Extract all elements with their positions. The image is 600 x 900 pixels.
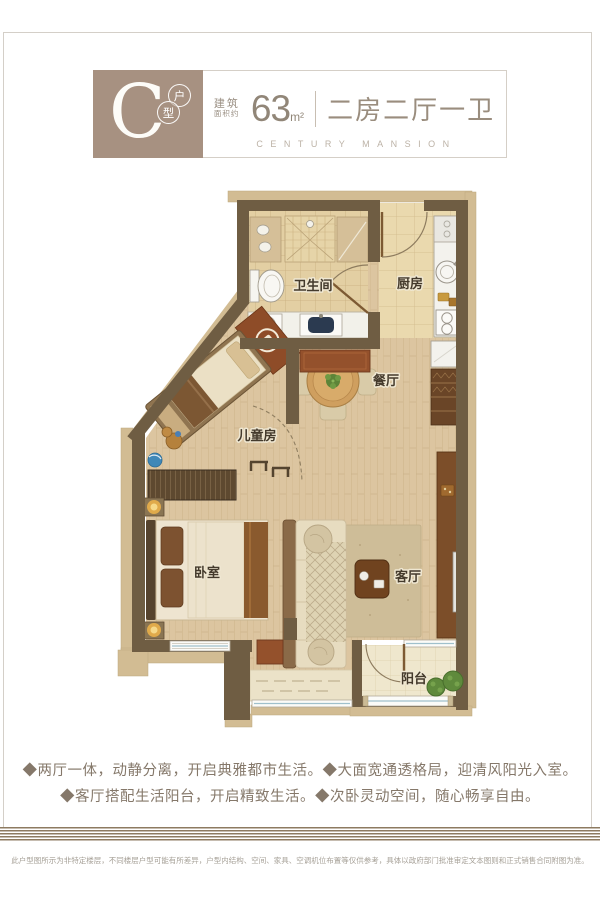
label-kids-room: 儿童房	[236, 428, 276, 443]
floorplan-page: C 户 型 建筑 面积约 63m² 二房二厅一卫 CENTURY MANSION	[0, 0, 600, 900]
feature-line-2: ◆客厅搭配生活阳台，开启精致生活。◆次卧灵动空间，随心畅享自由。	[0, 784, 600, 810]
tv-console	[437, 452, 458, 638]
dining-cabinets	[431, 341, 459, 425]
feature-line-1: ◆两厅一体，动静分离，开启典雅都市生活。◆大面宽通透格局，迎清风阳光入室。	[0, 758, 600, 784]
label-living: 客厅	[395, 569, 421, 584]
label-bathroom: 卫生间	[293, 278, 332, 293]
label-balcony: 阳台	[401, 671, 427, 686]
label-dining: 餐厅	[372, 373, 399, 388]
label-kitchen: 厨房	[397, 276, 423, 291]
disclaimer-text: 此户型图所示为非特定楼层，不同楼层户型可能有所差异，户型内结构、空间、家具、空调…	[0, 855, 600, 866]
feature-text: ◆两厅一体，动静分离，开启典雅都市生活。◆大面宽通透格局，迎清风阳光入室。 ◆客…	[0, 758, 600, 810]
sofa	[283, 520, 346, 668]
label-bedroom: 卧室	[194, 565, 220, 580]
divider-stripes	[0, 827, 600, 842]
